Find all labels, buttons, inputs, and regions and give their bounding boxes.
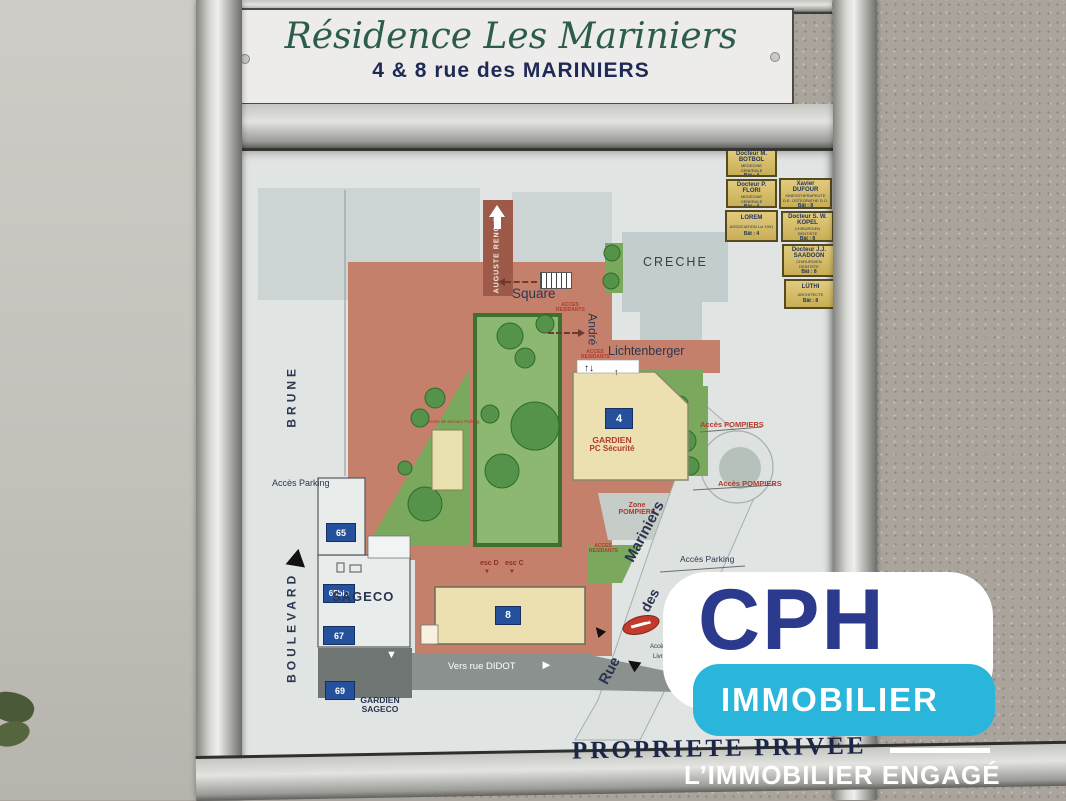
plaque-specialty: ASSOCIATION Loi 1901 [729, 224, 774, 229]
acces-residants-label-2: ACCES RESIDANTS [581, 350, 609, 361]
acces-residants-l2: RESIDANTS [581, 355, 609, 360]
directory-plaque: LOREM ASSOCIATION Loi 1901 Bât : 4 [725, 210, 778, 242]
plaque-name: Docteur M. BOTBOL [730, 151, 773, 163]
frame-pole-left [196, 0, 242, 800]
zone-cut-label: Zone [646, 618, 660, 624]
plaque-specialty: MEDECINE GENERALE [730, 194, 773, 204]
esc-d-label: esc D [480, 560, 499, 567]
acces-pompiers-north-label: Accès POMPIERS [700, 421, 764, 429]
esc-d-arrow-icon: ▼ [484, 569, 490, 575]
dashed-path-2 [548, 332, 578, 334]
creche-footprint [622, 232, 728, 346]
dashed-path-1 [505, 281, 537, 283]
plaque-building: Bât : 4 [729, 231, 774, 237]
title-plate: Résidence Les Mariniers 4 & 8 rue des MA… [228, 8, 794, 105]
square-label: Square [512, 287, 556, 301]
plaque-name: Docteur S. W. KOPEL [785, 214, 830, 226]
entry-updown-arrows-icon: ↑↓ [584, 364, 594, 375]
plaque-building: Bât : 8 [788, 298, 833, 304]
renoir-arrow-stem [494, 217, 501, 229]
renoir-up-arrow-icon [489, 205, 505, 217]
plaque-building: Bât : 8 [786, 269, 832, 275]
garden-pavilion [432, 430, 463, 490]
street-label-brune: BRUNE [286, 356, 299, 436]
directory-plaque: LÜTHI ARCHITECTE Bât : 8 [784, 279, 837, 309]
dashed-arrowhead-right-icon [578, 329, 585, 337]
acces-parking-east-label: Accès Parking [680, 555, 734, 564]
acces-residants-label-3: ACCES RESIDANTS [589, 544, 617, 555]
acces-residants-l2: RESIDANTS [556, 308, 584, 313]
address-plate-65: 65 [326, 523, 356, 542]
acces-residants-l2: RESIDANTS [589, 549, 617, 554]
wall-left [0, 0, 196, 800]
gardien-sageco-line2: SAGECO [348, 705, 412, 714]
plaque-name: Xavier DUFOUR [783, 181, 828, 193]
plaque-building: Bât : 4 [730, 173, 773, 177]
plaque-name: LÜTHI [788, 284, 833, 290]
building-4-plate: 4 [605, 408, 633, 429]
acces-residants-label-1: ACCES RESIDANTS [556, 303, 584, 314]
plaque-specialty: CHIRURGIEN DENTISTE [785, 226, 830, 236]
brand-division: IMMOBILIER [693, 681, 939, 719]
brand-underline [890, 748, 990, 753]
sortie-secours-label: Sortie de secours Parking [428, 420, 480, 425]
brand-tagline: L’IMMOBILIER ENGAGÉ [684, 762, 1001, 789]
sageco-label: SAGECO [332, 590, 394, 604]
brand-name: CPH [698, 572, 886, 668]
directory-plaque: Xavier DUFOUR KINESITHERAPEUTE D.E. OSTE… [779, 178, 832, 209]
plaque-building: Bât : 8 [785, 236, 830, 242]
didot-arrow-icon: ► [540, 658, 553, 672]
photo-scene: { "sign": { "title": "Résidence Les Mari… [0, 0, 1066, 800]
directory-plaque: Docteur M. BOTBOL MEDECINE GENERALE Bât … [726, 148, 777, 177]
directory-plaque: Docteur J.J. SAADOON CHIRURGIEN DENTISTE… [782, 244, 836, 277]
address-plate-67: 67 [323, 626, 355, 645]
lichtenberger-label: Lichtenberger [608, 345, 684, 358]
frame-cross-bar [215, 104, 877, 151]
building-8-plate: 8 [495, 606, 521, 625]
residence-title: Résidence Les Mariniers [230, 16, 792, 57]
gardien-sageco-label: GARDIEN SAGECO [348, 696, 412, 714]
vers-didot-label: Vers rue DIDOT [448, 662, 516, 672]
plaque-specialty: ARCHITECTE [788, 292, 833, 297]
street-label-boulevard: BOULEVARD [286, 562, 299, 692]
gardien-pc-securite-label: GARDIEN PC Sécurité [577, 436, 647, 453]
stairs-icon [540, 272, 572, 289]
plaque-building: Bât : 8 [783, 203, 828, 209]
plaque-building: Bât : 4 [730, 204, 773, 208]
building-8-hut [421, 625, 438, 644]
acces-parking-west-label: Accès Parking [272, 479, 330, 488]
creche-label: CRECHE [643, 256, 708, 269]
directory-plaque: Docteur S. W. KOPEL CHIRURGIEN DENTISTE … [781, 211, 834, 242]
screw [770, 52, 780, 62]
entry-up-arrow-icon: ↑ [614, 368, 619, 377]
directory-plaque: Docteur P. FLORI MEDECINE GENERALE Bât :… [726, 179, 777, 208]
plaque-specialty: KINESITHERAPEUTE D.E. OSTEOPATHE D.O. [783, 193, 828, 203]
pc-securite-line: PC Sécurité [577, 445, 647, 453]
acces-pompiers-south-label: Accès POMPIERS [718, 480, 782, 488]
plaque-specialty: MEDECINE GENERALE [730, 163, 773, 173]
plaque-name: Docteur P. FLORI [730, 182, 773, 194]
didot-entry-arrow-icon: ▼ [386, 650, 397, 662]
esc-c-arrow-icon: ▼ [509, 569, 515, 575]
esc-c-label: esc C [505, 560, 524, 567]
plaque-specialty: CHIRURGIEN DENTISTE [786, 259, 832, 269]
plaque-name: Docteur J.J. SAADOON [786, 247, 832, 259]
residence-subtitle: 4 & 8 rue des MARINIERS [230, 59, 792, 83]
brand-division-banner: IMMOBILIER [693, 664, 995, 736]
plaque-name: LOREM [729, 215, 774, 221]
